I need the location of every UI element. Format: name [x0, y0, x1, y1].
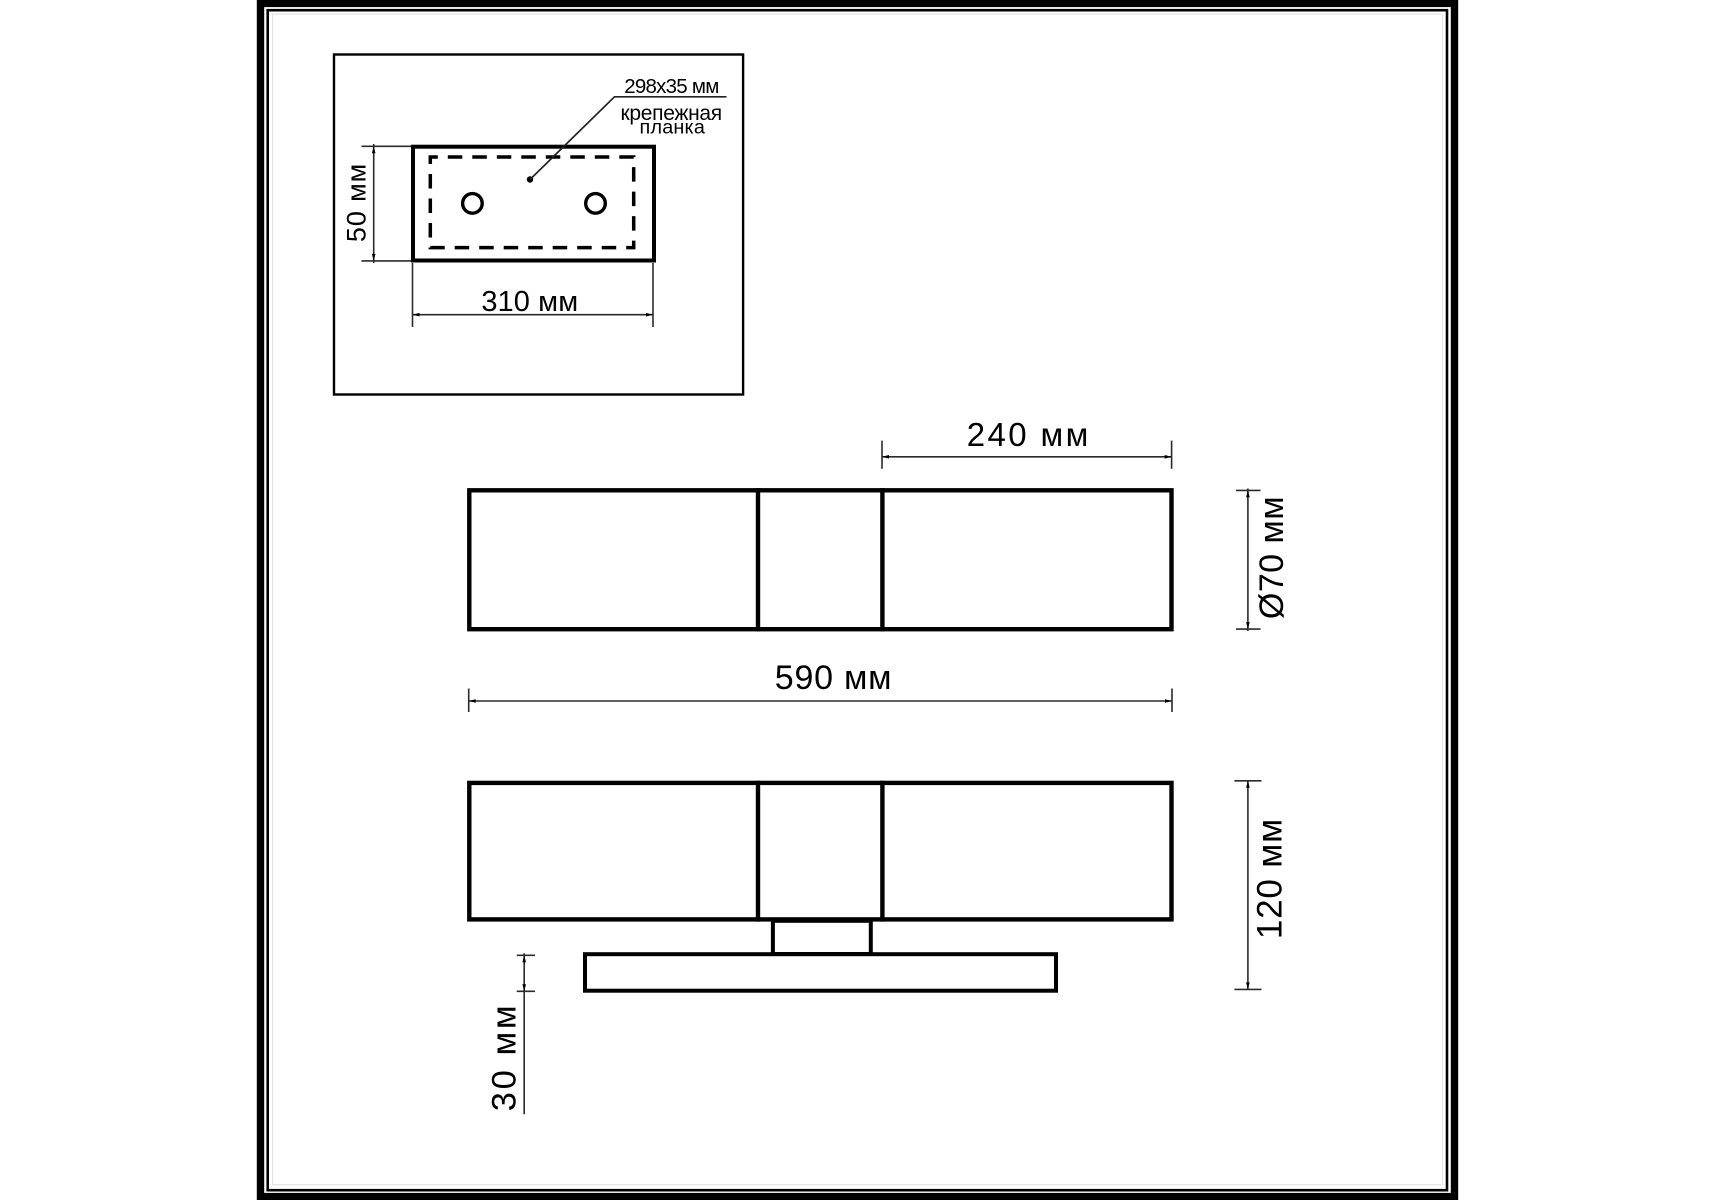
svg-text:310 мм: 310 мм — [481, 286, 578, 318]
svg-text:планка: планка — [640, 117, 705, 139]
svg-text:240 мм: 240 мм — [967, 416, 1091, 453]
svg-text:30 мм: 30 мм — [486, 1003, 524, 1111]
svg-text:50 мм: 50 мм — [341, 163, 371, 242]
svg-text:590 мм: 590 мм — [775, 659, 892, 697]
svg-text:298x35 мм: 298x35 мм — [624, 75, 718, 98]
svg-text:Ø70 мм: Ø70 мм — [1253, 496, 1291, 619]
svg-text:120 мм: 120 мм — [1251, 818, 1290, 939]
